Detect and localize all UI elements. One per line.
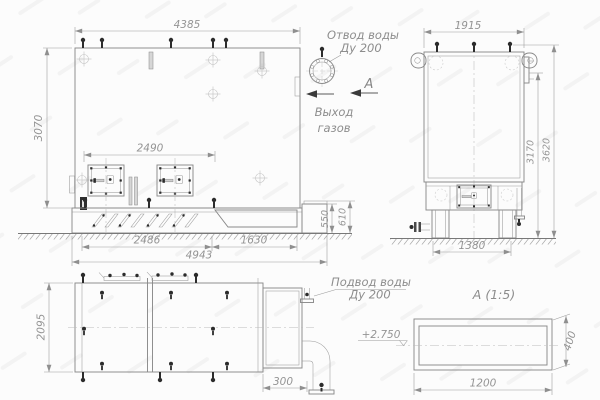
dim-1630: 1630 xyxy=(241,235,268,247)
gas-exit-label-line2: газов xyxy=(317,121,350,135)
dim-550: 550 xyxy=(320,210,331,228)
water-inlet-label-line2: Ду 200 xyxy=(348,288,390,302)
dim-4385: 4385 xyxy=(174,19,201,31)
dim-2486: 2486 xyxy=(134,235,161,247)
dim-300: 300 xyxy=(273,376,293,388)
dim-1200: 1200 xyxy=(470,378,497,390)
dim-610: 610 xyxy=(338,208,349,226)
section-letter: А xyxy=(364,77,374,92)
drawing-canvas: Отвод воды Ду 200 А Выход газов xyxy=(0,0,600,400)
dim-3170: 3170 xyxy=(526,140,537,164)
water-outlet-label-line1: Отвод воды xyxy=(327,28,399,42)
dim-1380: 1380 xyxy=(459,240,486,252)
gas-exit-label-line1: Выход xyxy=(315,105,354,119)
dim-4943: 4943 xyxy=(186,250,213,262)
detail-a-title: А (1:5) xyxy=(472,287,515,302)
water-outlet-label-line2: Ду 200 xyxy=(339,41,381,55)
dim-2490: 2490 xyxy=(137,143,164,155)
dim-2095: 2095 xyxy=(36,313,48,340)
ground-line-front xyxy=(18,234,352,240)
dim-1915: 1915 xyxy=(455,20,482,32)
level-mark-value: +2.750 xyxy=(362,329,401,341)
dim-3620: 3620 xyxy=(542,138,553,162)
dim-3070: 3070 xyxy=(33,114,45,141)
boiler-technical-drawing: Отвод воды Ду 200 А Выход газов xyxy=(0,0,600,400)
